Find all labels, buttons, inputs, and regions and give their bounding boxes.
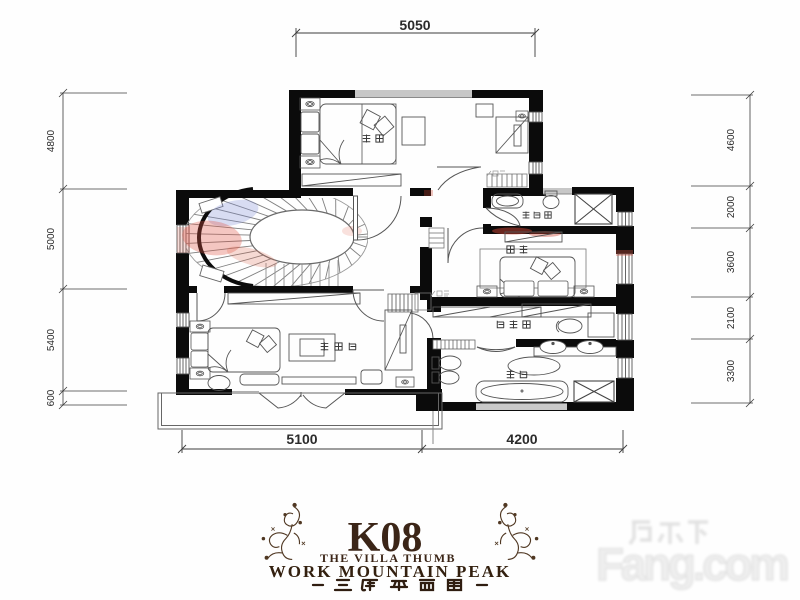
svg-text:4600: 4600 (726, 128, 737, 151)
svg-text:5100: 5100 (286, 431, 317, 447)
svg-text:2100: 2100 (726, 306, 737, 329)
svg-text:WORK MOUNTAIN PEAK: WORK MOUNTAIN PEAK (269, 562, 512, 581)
svg-text:4200: 4200 (506, 431, 537, 447)
svg-text:4800: 4800 (46, 129, 57, 152)
svg-text:5000: 5000 (46, 227, 57, 250)
svg-text:600: 600 (46, 389, 57, 406)
svg-text:5400: 5400 (46, 328, 57, 351)
svg-text:Fang.com: Fang.com (596, 538, 790, 590)
svg-text:5050: 5050 (399, 17, 430, 33)
svg-text:2000: 2000 (726, 195, 737, 218)
svg-text:3300: 3300 (726, 359, 737, 382)
svg-text:3600: 3600 (726, 250, 737, 273)
